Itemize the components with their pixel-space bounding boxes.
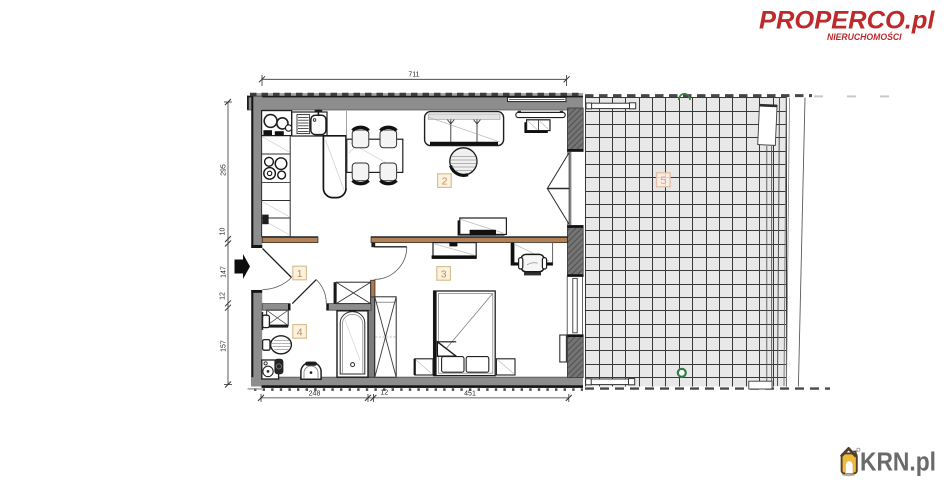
- svg-text:10: 10: [220, 228, 227, 236]
- svg-text:PROPERCO.pl: PROPERCO.pl: [759, 7, 936, 35]
- svg-text:KRN.pl: KRN.pl: [860, 448, 936, 476]
- svg-text:295: 295: [221, 164, 228, 176]
- svg-text:248: 248: [309, 390, 321, 397]
- svg-text:NIERUCHOMOŚCI: NIERUCHOMOŚCI: [827, 31, 902, 42]
- svg-text:147: 147: [221, 266, 228, 278]
- svg-text:2: 2: [442, 176, 448, 188]
- svg-text:12: 12: [381, 389, 389, 396]
- svg-text:5: 5: [660, 175, 666, 187]
- svg-text:451: 451: [464, 390, 476, 397]
- svg-text:3: 3: [441, 268, 447, 280]
- svg-text:157: 157: [221, 340, 228, 352]
- svg-text:1: 1: [297, 268, 303, 280]
- svg-text:12: 12: [220, 292, 227, 300]
- svg-text:4: 4: [297, 326, 303, 338]
- svg-text:711: 711: [408, 72, 419, 79]
